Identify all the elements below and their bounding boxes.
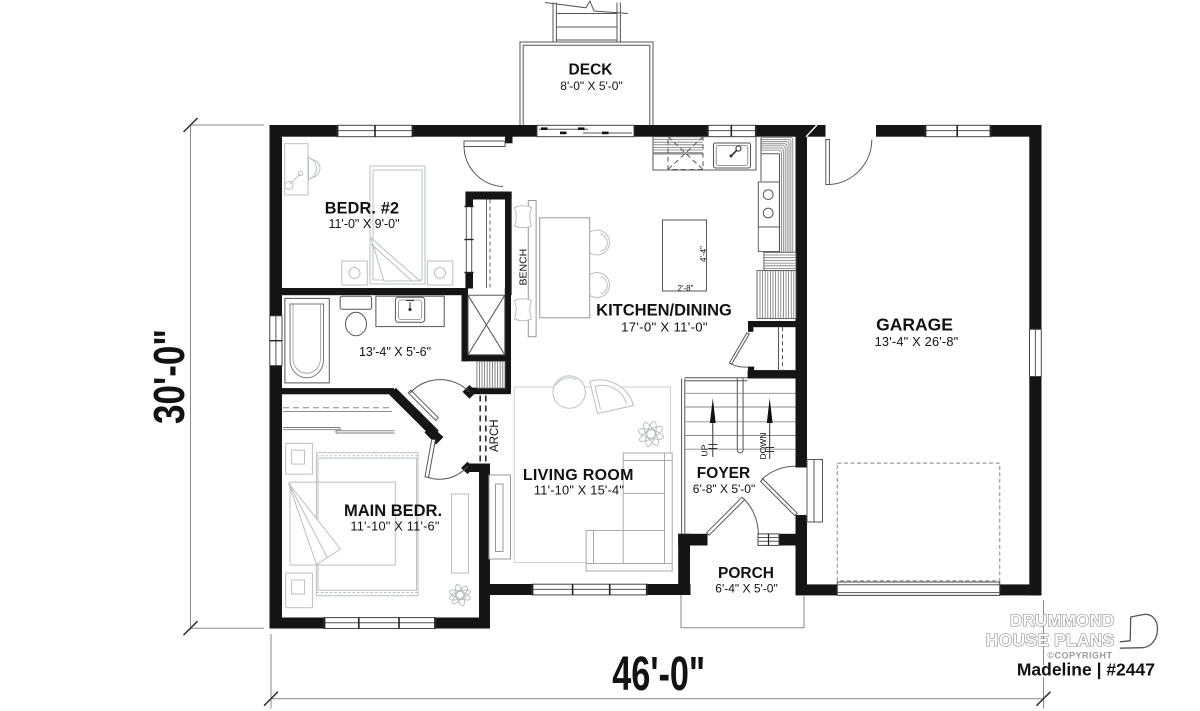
svg-text:UP: UP bbox=[700, 444, 710, 456]
svg-text:DOWN: DOWN bbox=[758, 433, 768, 460]
svg-text:HOUSE PLANS: HOUSE PLANS bbox=[986, 630, 1115, 650]
svg-text:BEDR. #2: BEDR. #2 bbox=[325, 200, 399, 218]
svg-text:11'-10" X 15'-4": 11'-10" X 15'-4" bbox=[534, 483, 624, 498]
svg-text:13'-4" X 5'-6": 13'-4" X 5'-6" bbox=[359, 345, 431, 359]
svg-text:KITCHEN/DINING: KITCHEN/DINING bbox=[596, 302, 732, 320]
svg-text:LIVING ROOM: LIVING ROOM bbox=[523, 467, 634, 484]
svg-text:2'-8": 2'-8" bbox=[678, 284, 694, 293]
svg-text:GARAGE: GARAGE bbox=[876, 315, 953, 335]
svg-text:PORCH: PORCH bbox=[718, 565, 774, 582]
svg-text:8'-0" X 5'-0": 8'-0" X 5'-0" bbox=[560, 79, 622, 93]
svg-text:30'-0": 30'-0" bbox=[145, 329, 194, 424]
svg-text:17'-0" X 11'-0": 17'-0" X 11'-0" bbox=[621, 320, 708, 335]
svg-text:11'-10" X 11'-6": 11'-10" X 11'-6" bbox=[350, 519, 439, 534]
svg-text:6'-8" X 5'-0": 6'-8" X 5'-0" bbox=[693, 482, 755, 496]
svg-text:4'-4": 4'-4" bbox=[699, 246, 708, 262]
svg-text:11'-0" X 9'-0": 11'-0" X 9'-0" bbox=[328, 217, 399, 231]
svg-text:DRUMMOND: DRUMMOND bbox=[1010, 611, 1115, 630]
svg-text:6'-4" X 5'-0": 6'-4" X 5'-0" bbox=[715, 581, 777, 595]
svg-text:BENCH: BENCH bbox=[518, 249, 530, 286]
svg-text:MAIN BEDR.: MAIN BEDR. bbox=[344, 502, 442, 520]
svg-text:ARCH: ARCH bbox=[489, 419, 501, 452]
svg-text:Madeline | #2447: Madeline | #2447 bbox=[1017, 660, 1155, 680]
svg-text:46'-0": 46'-0" bbox=[612, 648, 705, 701]
svg-text:FOYER: FOYER bbox=[697, 465, 750, 482]
svg-text:DECK: DECK bbox=[569, 62, 614, 79]
svg-text:13'-4" X 26'-8": 13'-4" X 26'-8" bbox=[875, 334, 959, 349]
